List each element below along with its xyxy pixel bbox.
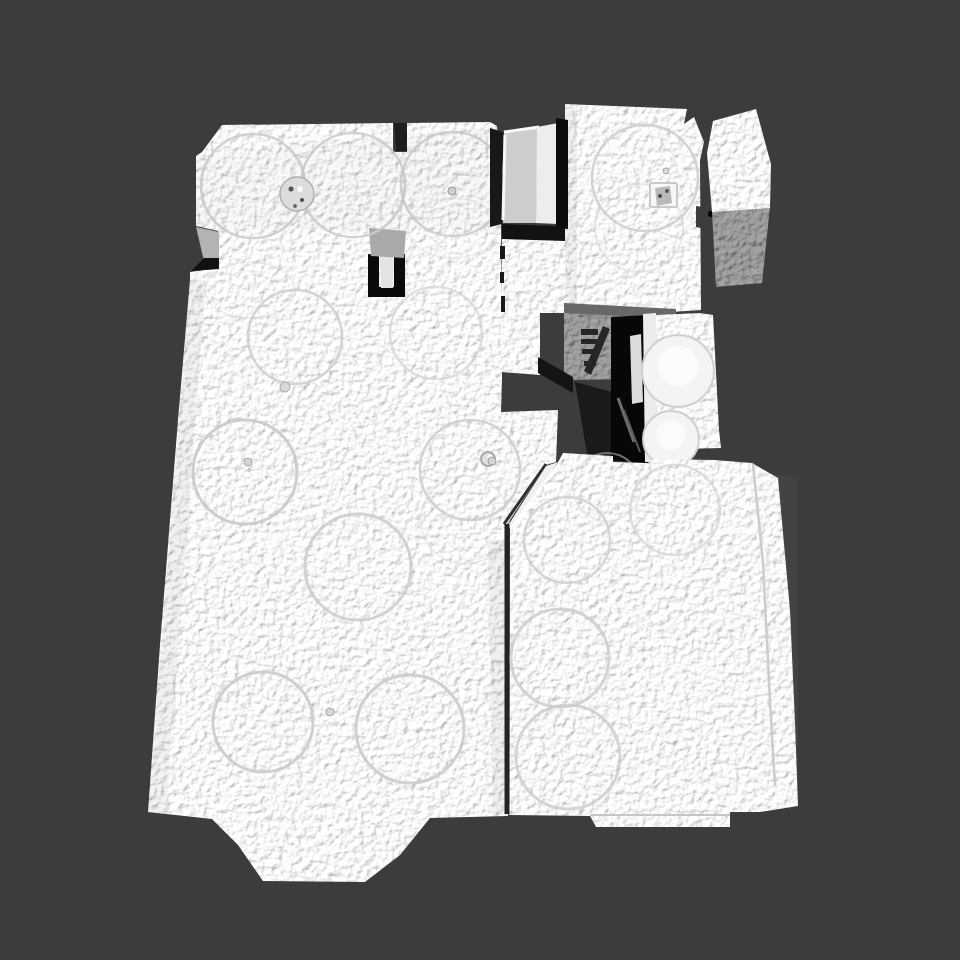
pit-shadow-bottom bbox=[368, 287, 405, 297]
scene-root bbox=[0, 0, 960, 960]
mound-highlight bbox=[658, 346, 698, 386]
pit-floor-white bbox=[380, 256, 393, 288]
square-bump-inner bbox=[655, 186, 672, 206]
wall-right-white bbox=[536, 123, 558, 224]
viewport-3d[interactable] bbox=[0, 0, 960, 960]
small-bump bbox=[488, 457, 496, 465]
mound-highlight bbox=[656, 420, 686, 450]
small-bump bbox=[244, 458, 252, 466]
far-right-piece-side-face bbox=[712, 206, 770, 287]
leaning-wall bbox=[503, 128, 539, 223]
small-bump bbox=[280, 382, 290, 392]
leaning-wall-highlight bbox=[503, 135, 505, 220]
square-bump-speck bbox=[658, 194, 662, 198]
wall-gap-slot bbox=[490, 128, 503, 227]
top-right-block bbox=[565, 104, 704, 313]
shadow-band-horizontal bbox=[502, 224, 565, 241]
platform-glyph bbox=[581, 329, 598, 335]
lower-slab-bright-shade bbox=[700, 462, 798, 812]
platform-glyph bbox=[581, 339, 597, 344]
square-bump-speck bbox=[665, 189, 669, 193]
shadow-column-sliver bbox=[630, 334, 643, 404]
seam-dash bbox=[500, 246, 505, 259]
shadow-band-vertical bbox=[556, 118, 568, 229]
seam-dash bbox=[501, 296, 505, 312]
mesh-canvas[interactable] bbox=[0, 0, 960, 960]
small-bump bbox=[663, 168, 669, 174]
small-bump bbox=[326, 708, 334, 716]
seam-dash bbox=[500, 272, 504, 283]
